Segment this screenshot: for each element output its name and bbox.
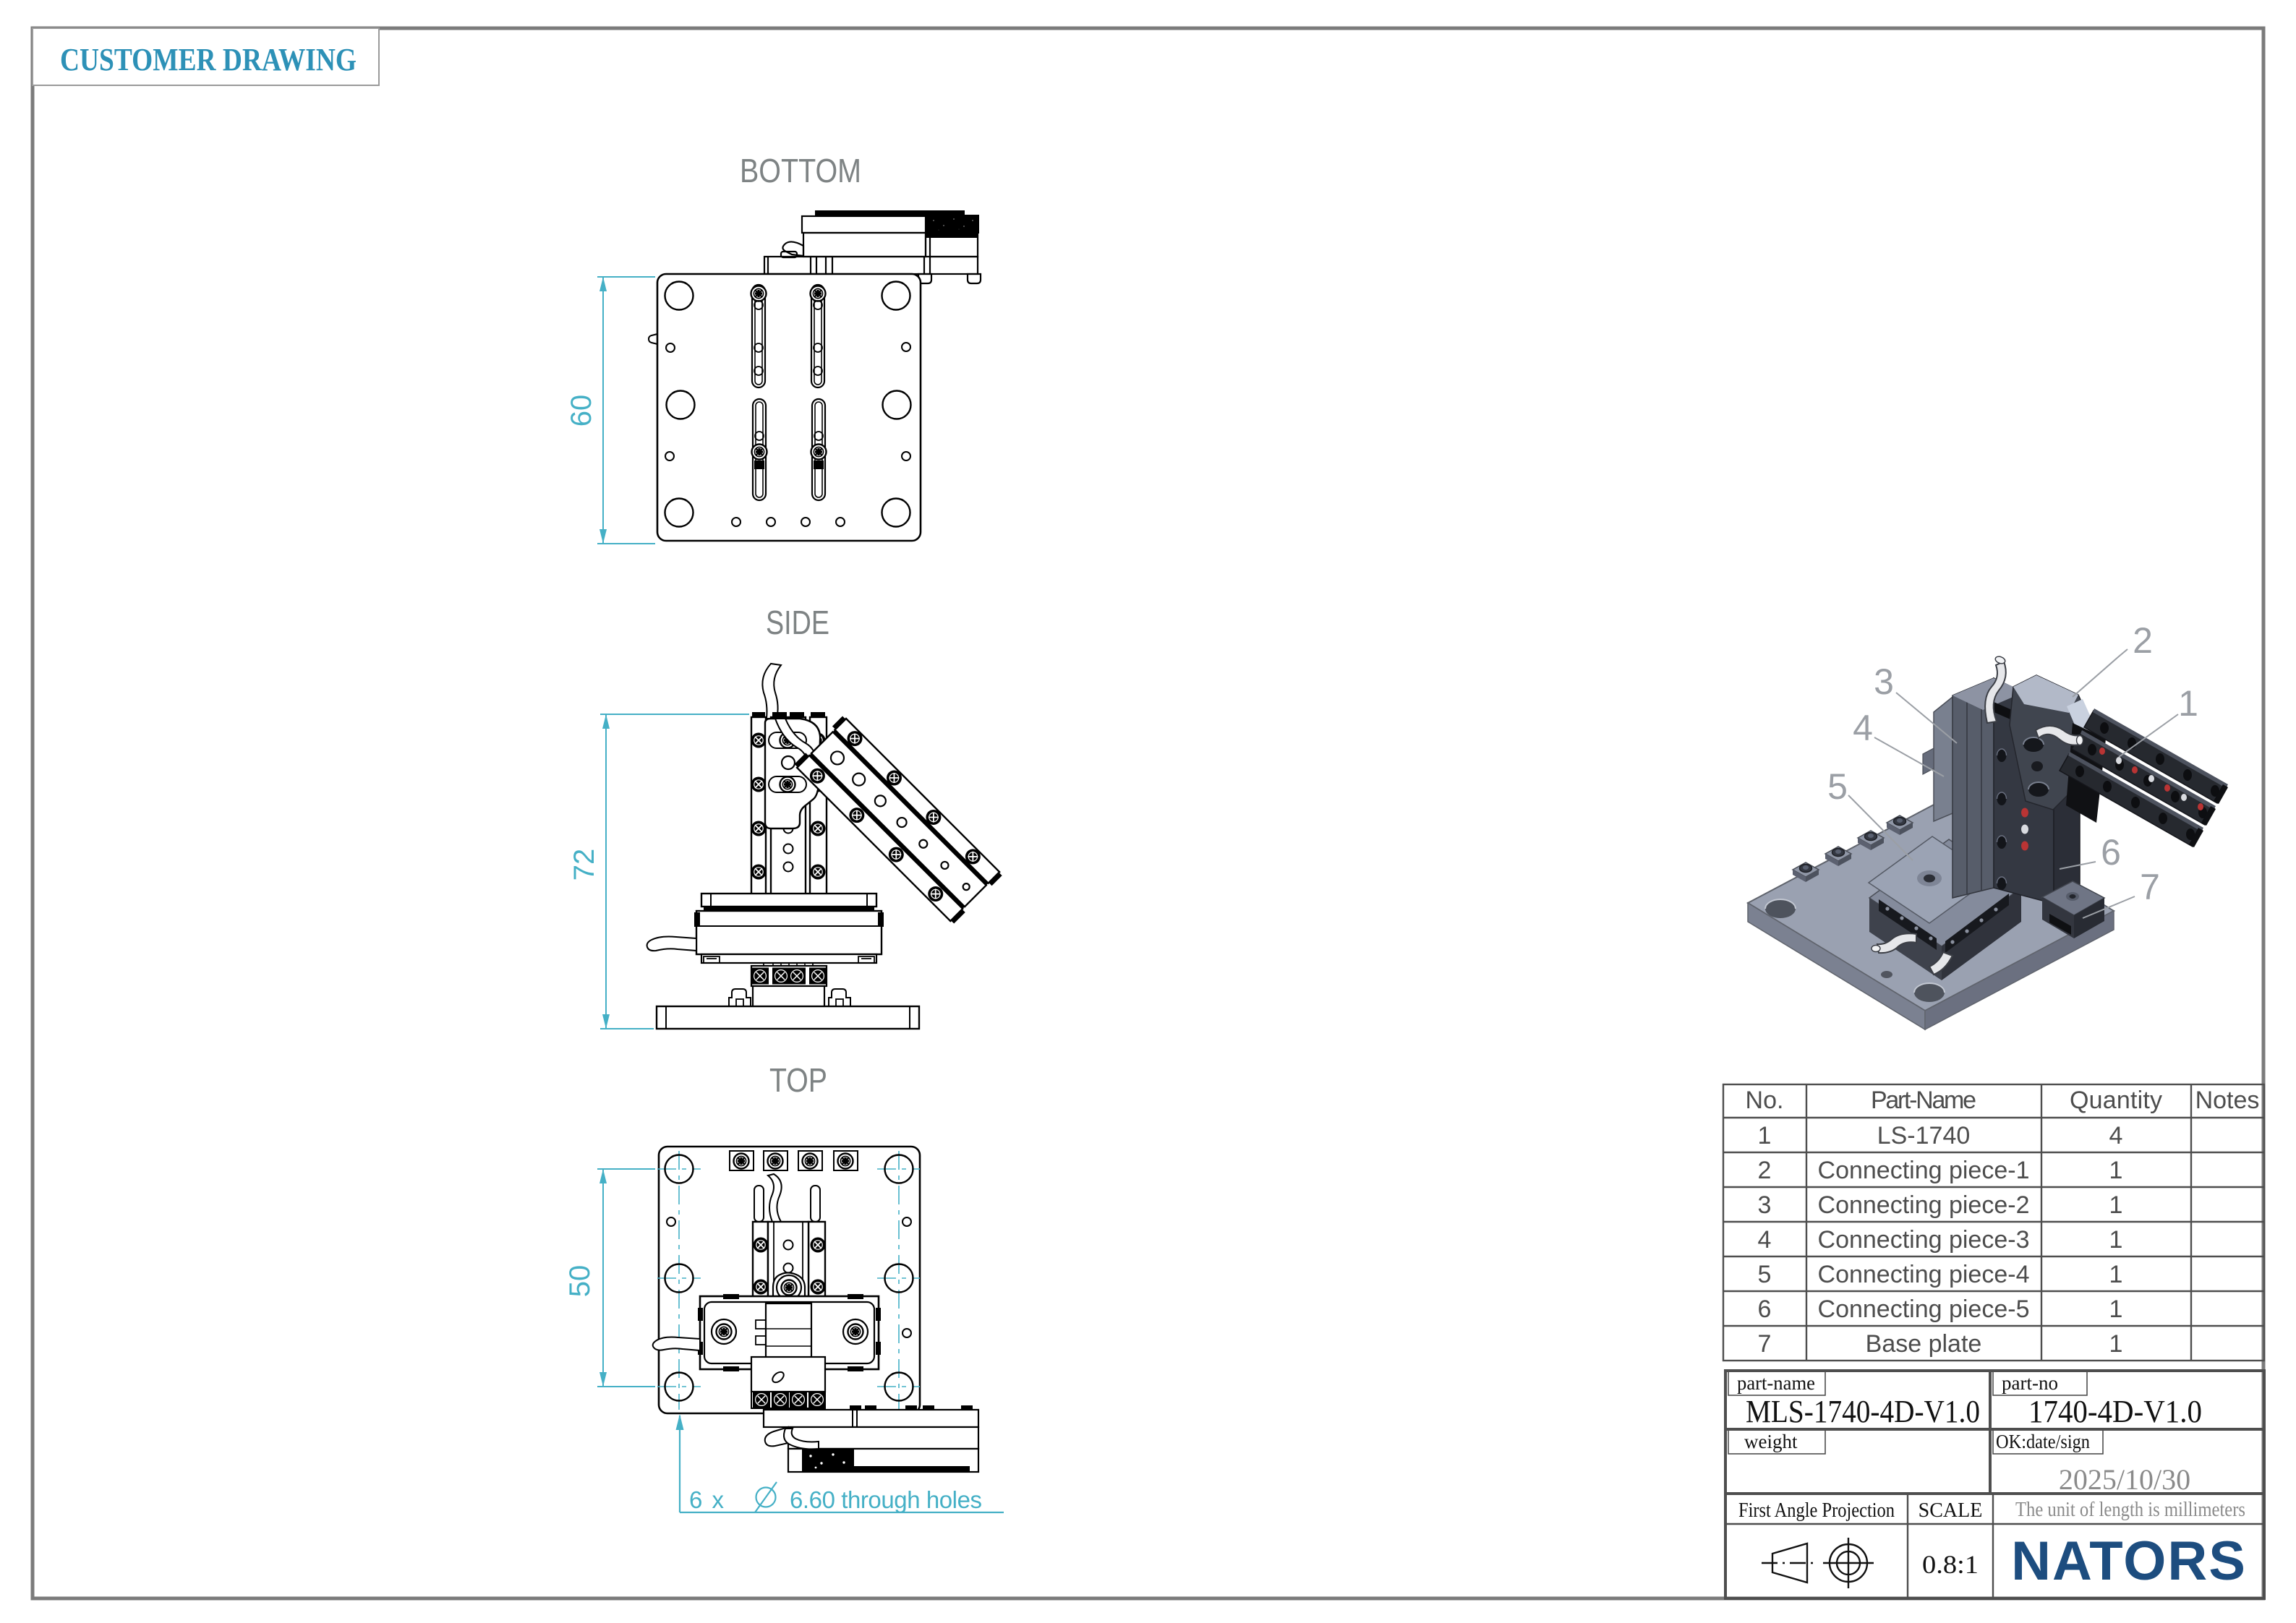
svg-text:OK:date/sign: OK:date/sign — [1996, 1431, 2090, 1452]
svg-text:5: 5 — [1758, 1261, 1772, 1288]
svg-text:7: 7 — [2140, 867, 2160, 907]
svg-text:2025/10/30: 2025/10/30 — [2059, 1463, 2190, 1496]
svg-text:6 x: 6 x — [689, 1486, 725, 1513]
svg-text:weight: weight — [1744, 1431, 1798, 1452]
svg-text:MLS-1740-4D-V1.0: MLS-1740-4D-V1.0 — [1746, 1394, 1980, 1429]
svg-text:1: 1 — [1758, 1122, 1772, 1149]
svg-text:part-name: part-name — [1737, 1372, 1815, 1394]
svg-text:4: 4 — [1853, 708, 1873, 748]
svg-text:NATORS: NATORS — [2011, 1530, 2247, 1592]
svg-text:4: 4 — [2109, 1122, 2123, 1149]
svg-text:Connecting piece-4: Connecting piece-4 — [1818, 1261, 2030, 1288]
svg-text:SCALE: SCALE — [1919, 1499, 1983, 1522]
svg-text:TOP: TOP — [769, 1061, 827, 1099]
svg-text:First Angle Projection: First Angle Projection — [1738, 1499, 1895, 1522]
svg-text:BOTTOM: BOTTOM — [740, 152, 861, 189]
svg-text:LS-1740: LS-1740 — [1877, 1122, 1971, 1149]
svg-text:part-no: part-no — [2002, 1372, 2058, 1394]
svg-text:The unit of length is millimet: The unit of length is millimeters — [2015, 1499, 2245, 1521]
svg-text:50: 50 — [564, 1265, 596, 1298]
svg-text:4: 4 — [1758, 1226, 1772, 1254]
svg-text:1: 1 — [2109, 1191, 2123, 1219]
svg-text:1: 1 — [2109, 1261, 2123, 1288]
svg-text:Notes: Notes — [2195, 1087, 2260, 1114]
svg-text:0.8:1: 0.8:1 — [1922, 1550, 1979, 1579]
svg-text:3: 3 — [1874, 661, 1894, 702]
svg-text:7: 7 — [1758, 1330, 1772, 1358]
svg-text:6.60 through holes: 6.60 through holes — [790, 1486, 983, 1513]
svg-text:Base plate: Base plate — [1866, 1330, 1982, 1358]
svg-text:2: 2 — [2133, 620, 2153, 661]
svg-text:Connecting piece-2: Connecting piece-2 — [1818, 1191, 2030, 1219]
svg-text:1: 1 — [2109, 1330, 2123, 1358]
svg-text:Part-Name: Part-Name — [1871, 1087, 1976, 1114]
svg-text:SIDE: SIDE — [766, 604, 829, 641]
svg-text:1: 1 — [2109, 1157, 2123, 1184]
svg-text:5: 5 — [1827, 766, 1848, 807]
svg-text:1: 1 — [2109, 1296, 2123, 1323]
svg-text:1740-4D-V1.0: 1740-4D-V1.0 — [2028, 1394, 2202, 1429]
svg-text:1: 1 — [2109, 1226, 2123, 1254]
svg-text:No.: No. — [1746, 1087, 1784, 1114]
svg-text:CUSTOMER DRAWING: CUSTOMER DRAWING — [60, 42, 357, 77]
svg-text:Quantity: Quantity — [2070, 1087, 2162, 1114]
svg-text:Connecting piece-3: Connecting piece-3 — [1818, 1226, 2030, 1254]
svg-text:Connecting piece-1: Connecting piece-1 — [1818, 1157, 2030, 1184]
svg-text:3: 3 — [1758, 1191, 1772, 1219]
svg-text:6: 6 — [2101, 832, 2121, 873]
svg-text:6: 6 — [1758, 1296, 1772, 1323]
svg-text:Connecting piece-5: Connecting piece-5 — [1818, 1296, 2030, 1323]
svg-text:2: 2 — [1758, 1157, 1772, 1184]
svg-text:72: 72 — [568, 849, 600, 881]
svg-text:60: 60 — [566, 395, 597, 427]
svg-text:1: 1 — [2178, 683, 2198, 724]
